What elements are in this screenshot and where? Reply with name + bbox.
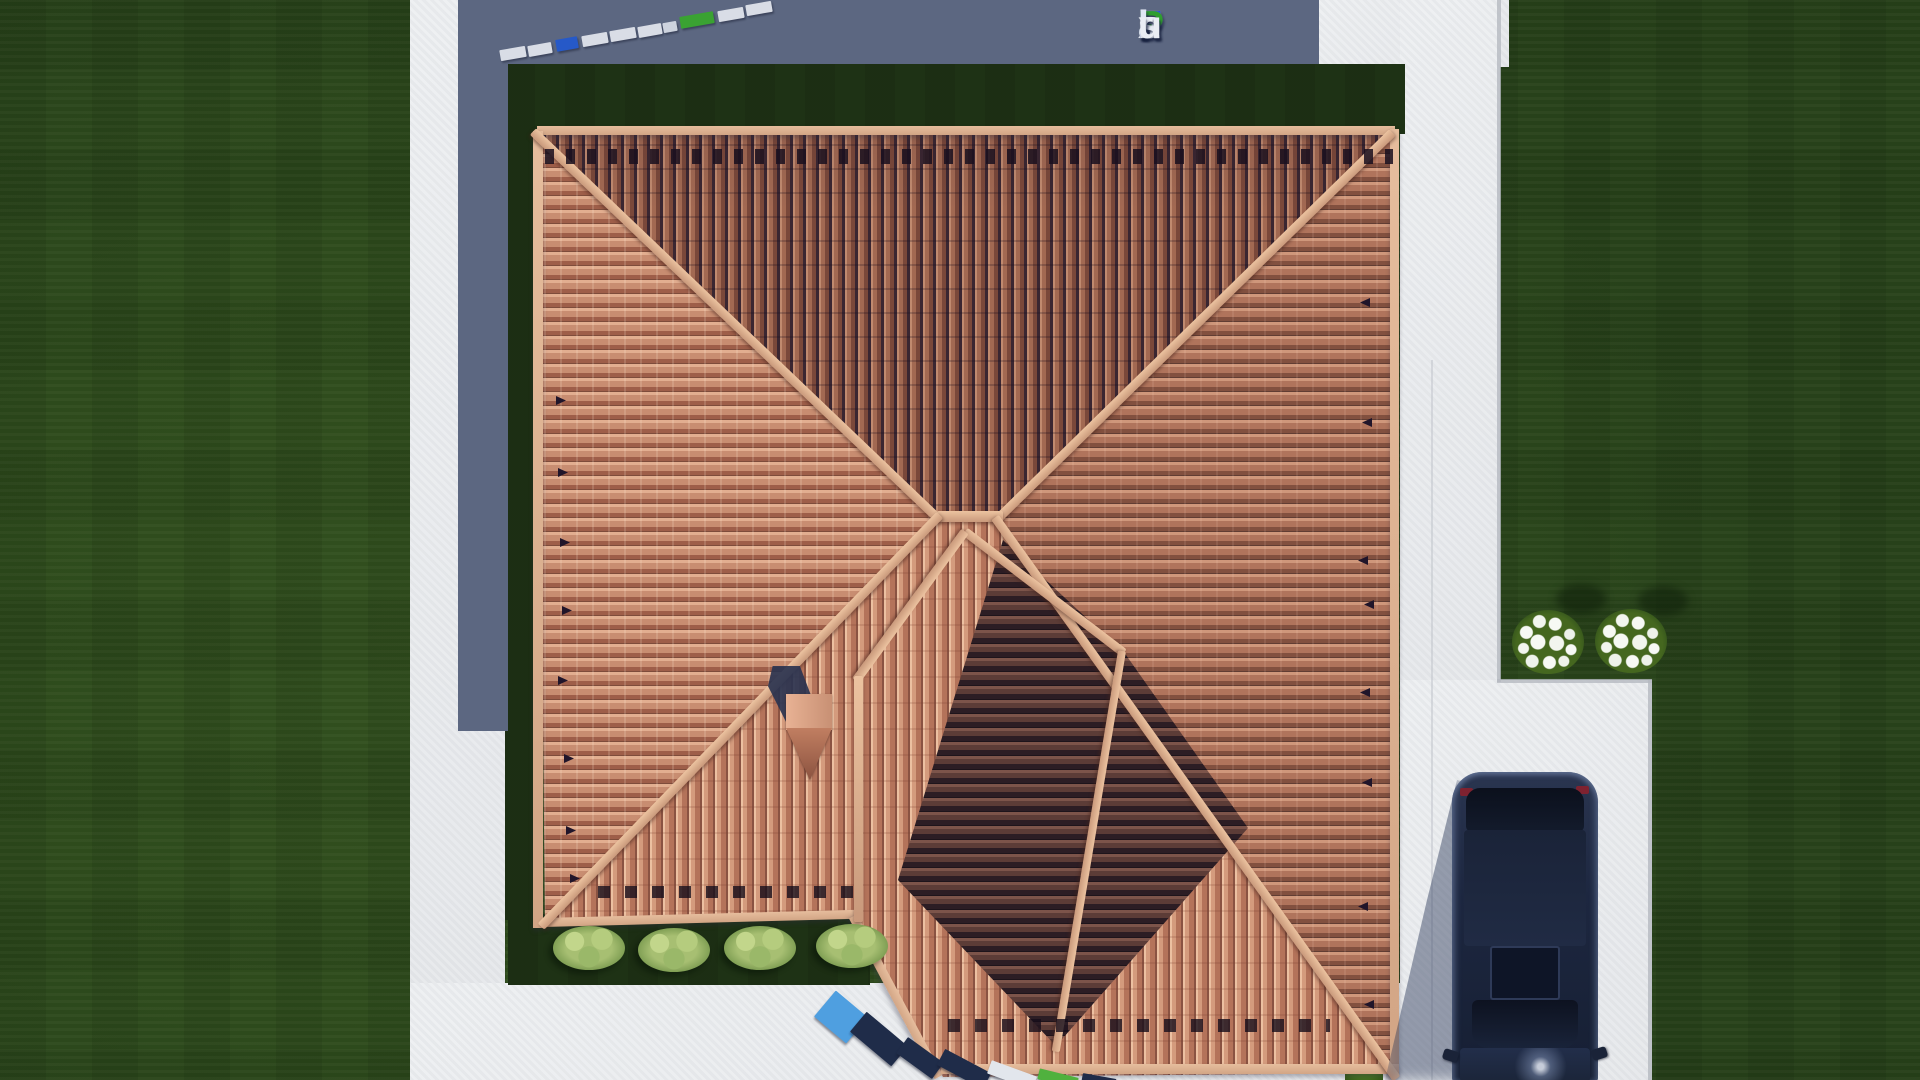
eave-top [537,126,1395,135]
eave-right [1390,129,1399,1075]
aerial-house-render: FixPlans.ru [0,0,1920,1080]
roof-dash-row-south [598,886,866,898]
flower-cluster [1595,609,1667,673]
car-hood [1460,1048,1590,1080]
car-windshield [1472,1000,1578,1048]
bush [816,924,888,968]
eave-left [533,131,543,928]
path-edging [1648,680,1652,1080]
house-shadow-left [458,0,508,731]
logo-letter: u [1138,2,1163,50]
chimney [786,694,832,780]
bush [724,926,796,970]
path-right [1400,0,1500,690]
house-shadow-top [458,0,1319,64]
car [1452,772,1598,1080]
car-rear-window [1466,788,1584,832]
chimney-cap-gable [786,728,832,780]
flower-shadow [1556,584,1606,614]
path-edging [1497,0,1501,682]
bush [553,926,625,970]
chimney-cap-top [786,694,832,730]
roof-crest-row [545,149,1393,164]
roof-dash-row-wing [948,1019,1330,1032]
car-sunroof [1490,946,1560,1000]
path-edging [1497,679,1652,683]
car-roof [1464,830,1586,946]
flower-cluster [1512,610,1584,674]
bush [638,928,710,972]
lawn-strip-top [505,64,1405,134]
